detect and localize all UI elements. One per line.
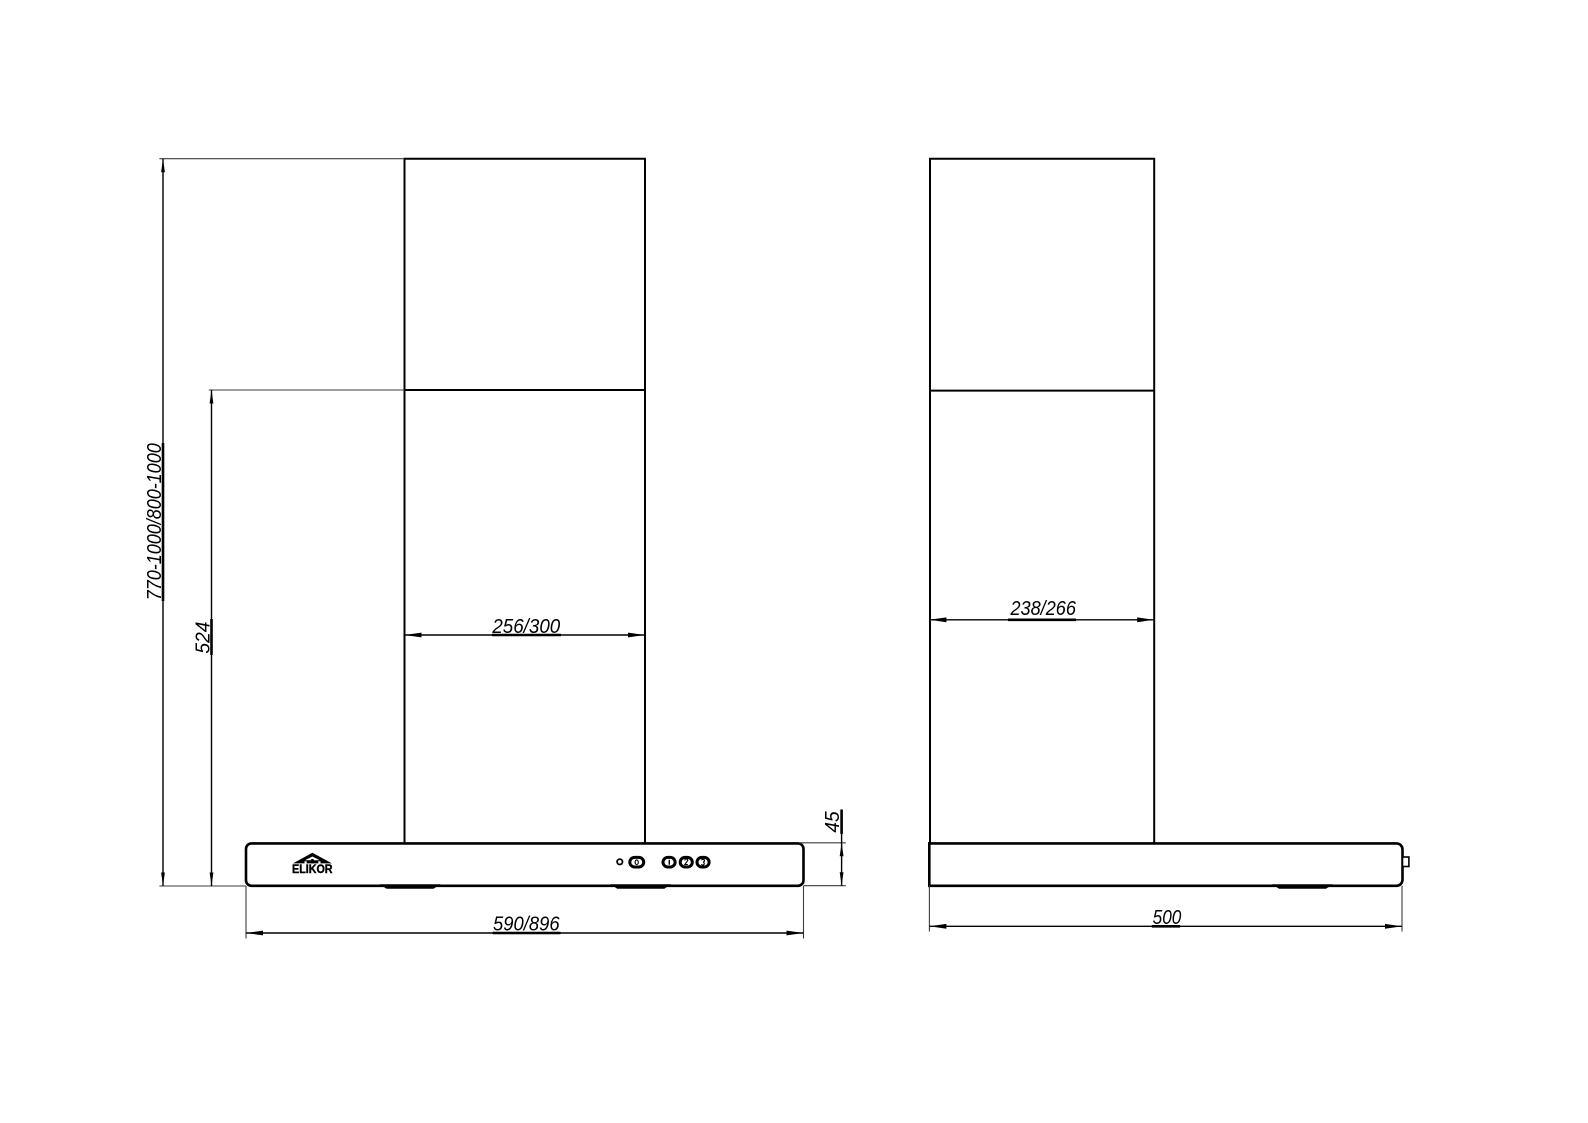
- svg-text:524: 524: [193, 622, 215, 654]
- svg-text:770-1000/800-1000: 770-1000/800-1000: [144, 443, 166, 600]
- svg-text:45: 45: [822, 811, 844, 833]
- svg-text:256/300: 256/300: [491, 616, 560, 638]
- svg-text:ELIKOR: ELIKOR: [292, 864, 333, 876]
- svg-text:238/266: 238/266: [1010, 598, 1077, 620]
- svg-text:500: 500: [1153, 907, 1182, 929]
- svg-text:590/896: 590/896: [493, 913, 560, 935]
